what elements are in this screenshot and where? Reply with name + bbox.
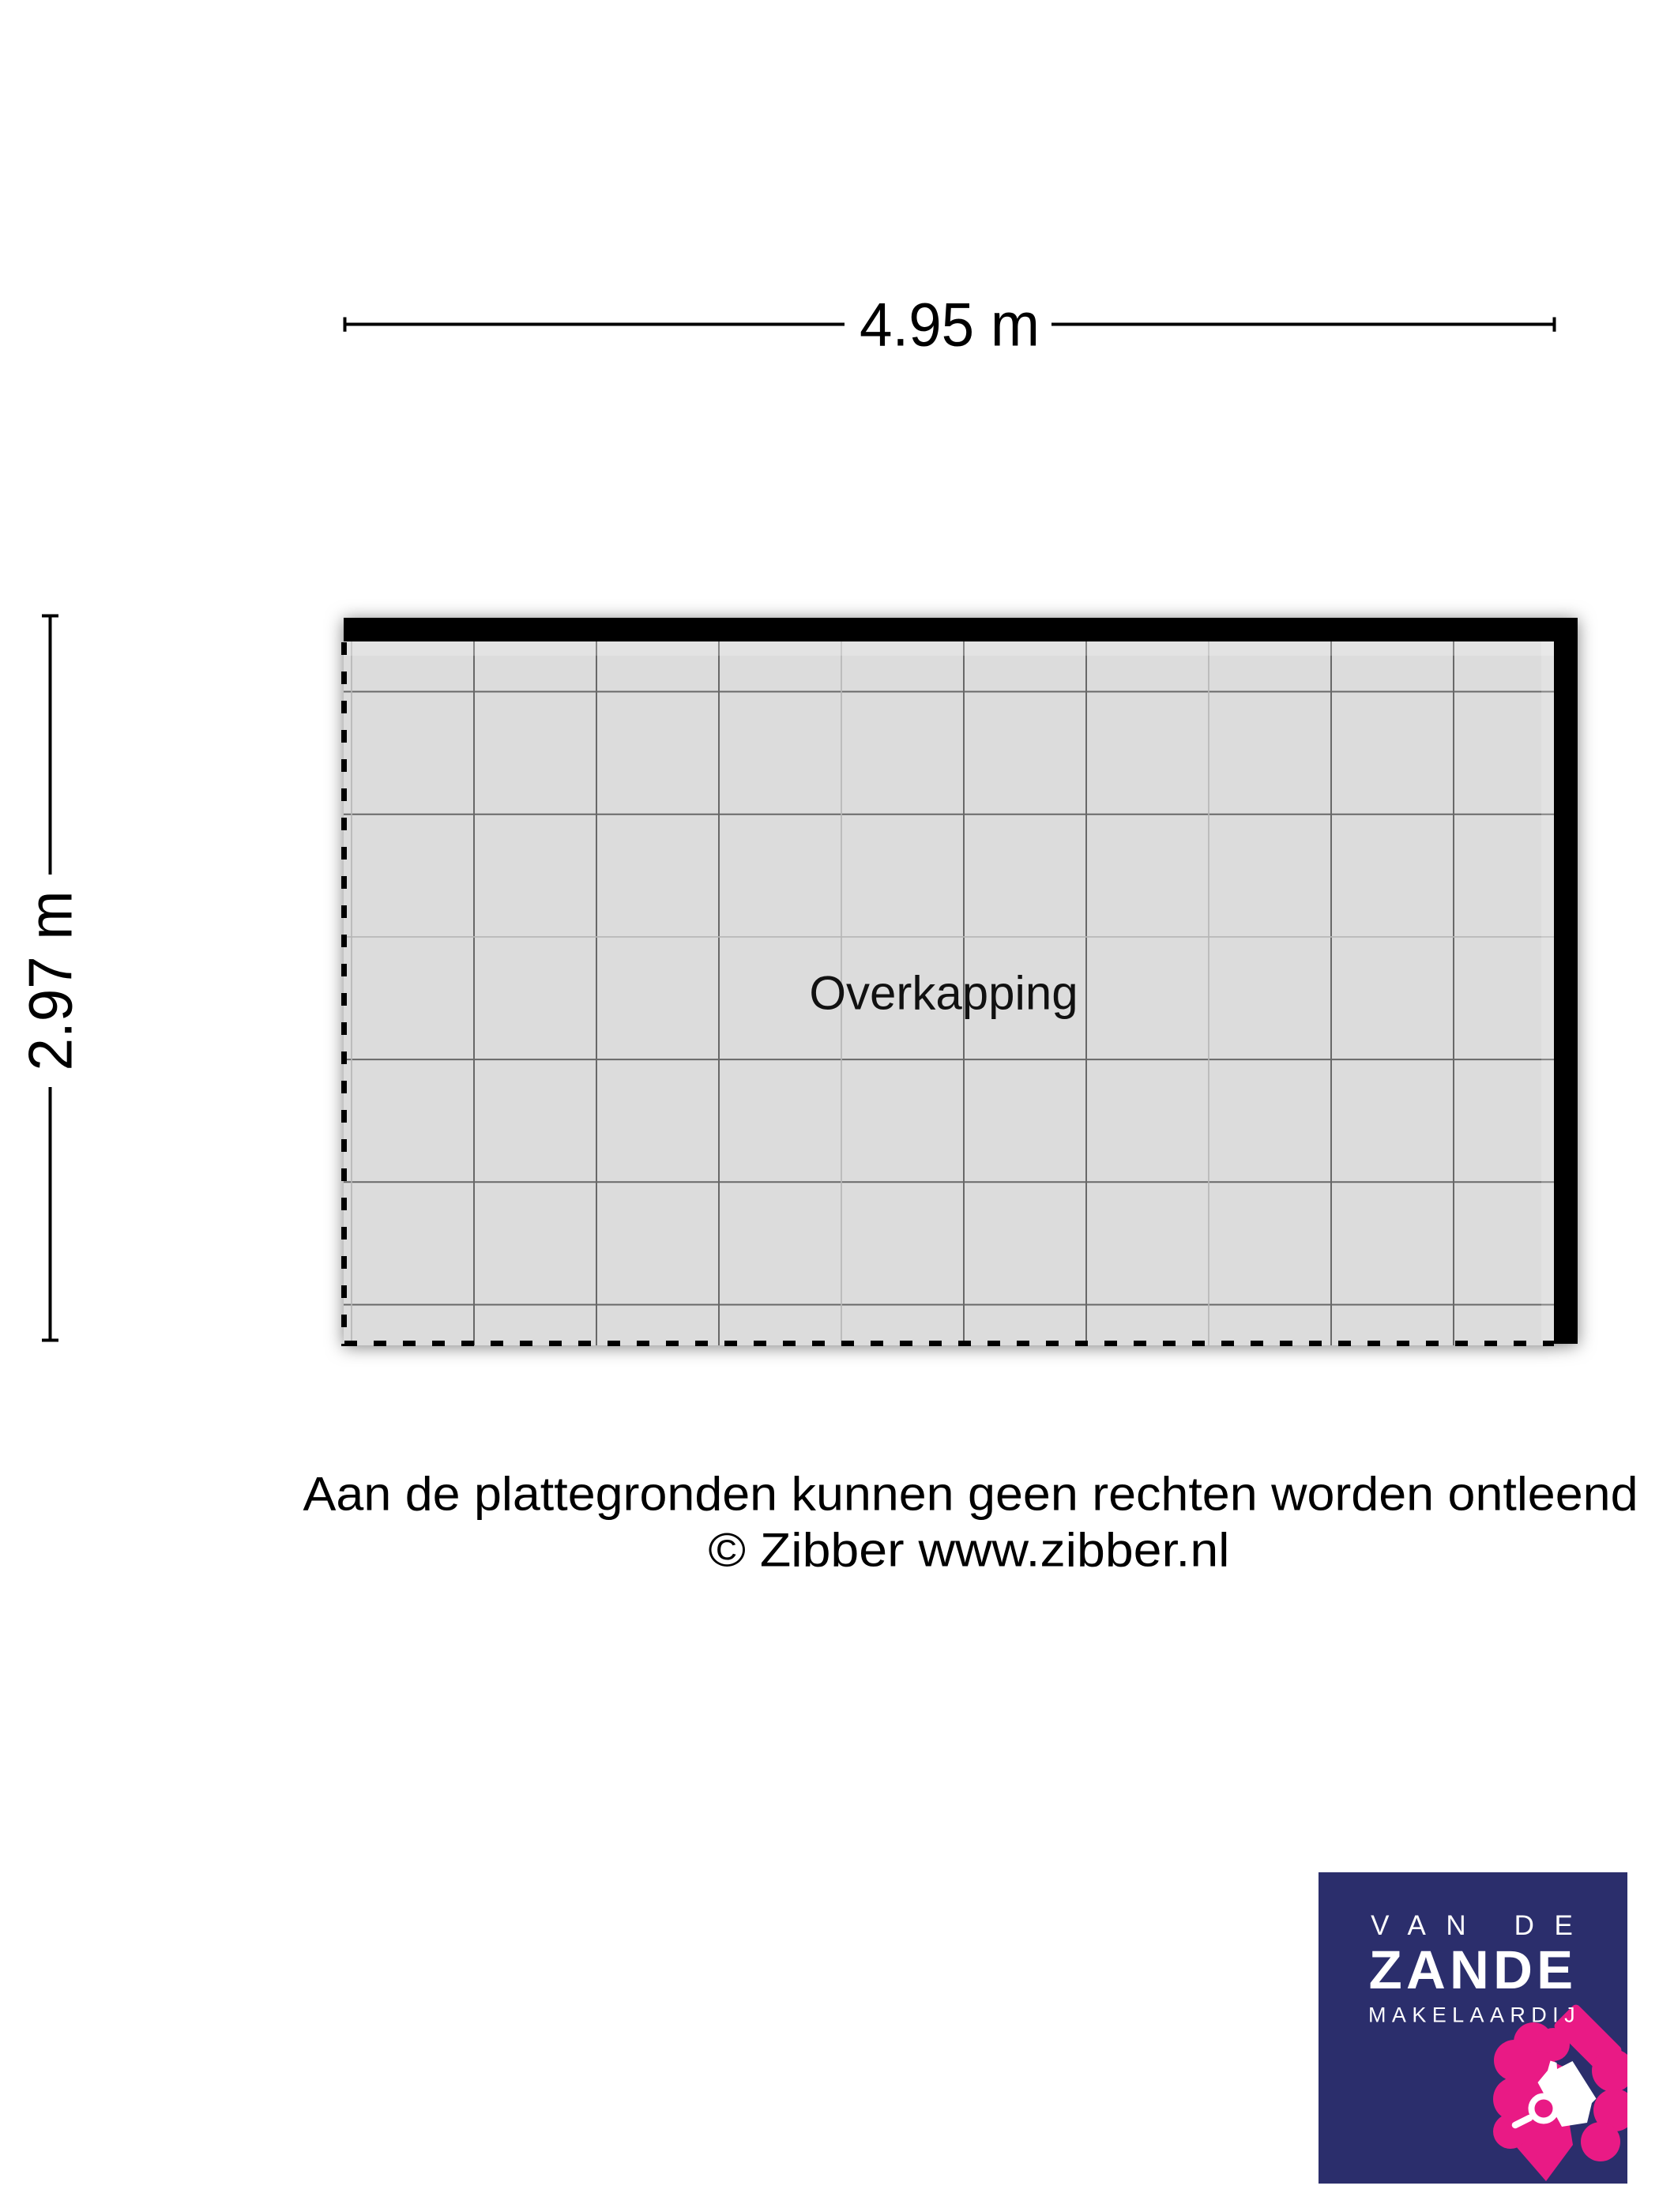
svg-text:© Zibber www.zibber.nl: © Zibber www.zibber.nl	[709, 1524, 1230, 1577]
svg-text:ZANDE: ZANDE	[1369, 1939, 1578, 2000]
svg-text:Aan de plattegronden kunnen ge: Aan de plattegronden kunnen geen rechten…	[303, 1468, 1638, 1521]
svg-text:MAKELAARDIJ: MAKELAARDIJ	[1368, 2003, 1581, 2027]
svg-text:Overkapping: Overkapping	[809, 967, 1078, 1020]
svg-text:VAN DE: VAN DE	[1371, 1910, 1593, 1941]
svg-text:4.95 m: 4.95 m	[860, 290, 1040, 359]
svg-text:2.97 m: 2.97 m	[16, 891, 85, 1071]
